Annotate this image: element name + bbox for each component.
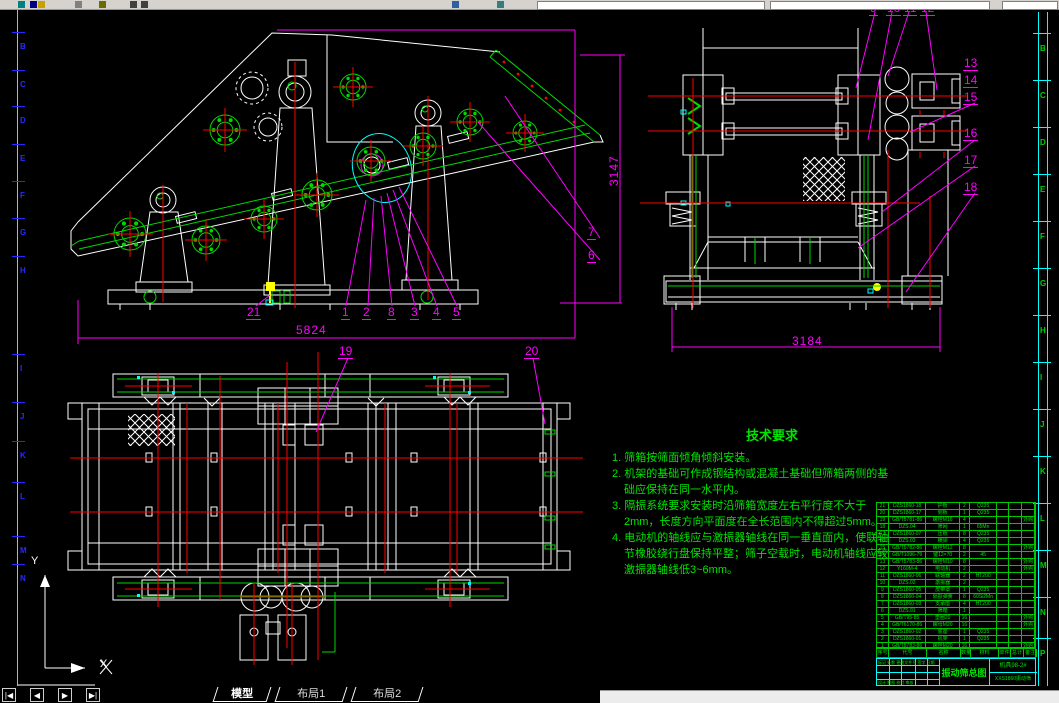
zone-tick — [1033, 456, 1051, 457]
table-row: 11DZS1860-06联轴器2HT200 — [877, 572, 1035, 579]
tab-布局1[interactable]: 布局1 — [275, 687, 348, 702]
zone-letter-left-F: F — [20, 192, 25, 200]
zone-letter-right-D: D — [1040, 139, 1046, 147]
callout-20: 20 — [524, 345, 539, 359]
table-row: 20DZS1860-17侧板1Q235 — [877, 509, 1035, 516]
zone-tick — [1033, 268, 1051, 269]
zone-letter-left-L: L — [20, 493, 25, 501]
tech-requirement-item-2: 2. 机架的基础可作成钢结构或混凝土基础但筛箱两侧的基础应保持在同一水平内。 — [612, 466, 894, 498]
callout-17: 17 — [963, 154, 978, 168]
color-combo[interactable] — [770, 1, 990, 10]
toolbar-icon[interactable] — [497, 1, 504, 8]
title-block-code: 机具98-2# — [990, 660, 1036, 672]
tech-requirement-item-3: 3. 隔振系统要求安装时沿筛箱宽度左右平行度不大于2mm，长度方向平面度在全长范… — [612, 498, 894, 530]
zone-tick — [12, 354, 25, 355]
tab-label: 布局2 — [354, 687, 420, 701]
zone-letter-left-I: I — [20, 365, 22, 373]
toolbar-icon[interactable] — [38, 1, 45, 8]
zone-letter-left-H: H — [20, 267, 26, 275]
bearing-highlight — [344, 126, 421, 210]
callout-2: 2 — [362, 306, 371, 320]
toolbar-icon[interactable] — [452, 1, 459, 8]
table-row: 17DZS1860-07压板8Q235 — [877, 530, 1035, 537]
plan-view-green — [117, 379, 555, 652]
zone-letter-left-N: N — [20, 575, 26, 583]
table-cell: 名称 — [927, 649, 961, 657]
zone-tick — [12, 482, 25, 483]
callout-5: 5 — [452, 306, 461, 320]
zone-letter-left-M: M — [20, 547, 27, 555]
table-cell: 备注 — [1024, 649, 1037, 657]
linetype-combo[interactable] — [1002, 1, 1058, 10]
table-row: 13GB/T5783-86螺栓M108外购 — [877, 558, 1035, 565]
zone-letter-left-G: G — [20, 229, 26, 237]
zone-letter-left-K: K — [20, 452, 26, 460]
zone-tick — [1033, 33, 1051, 34]
callout-8: 8 — [387, 306, 396, 320]
zone-letter-right-N: N — [1040, 609, 1046, 617]
callout-6: 6 — [587, 249, 596, 263]
table-header-row: 序号代号名称数量材料单件总计备注 — [877, 649, 1037, 657]
parts-table-header: 序号代号名称数量材料单件总计备注 — [876, 648, 1036, 658]
tech-requirement-item-4: 4. 电动机的轴线应与激振器轴线在同一垂直面内，使联轴节橡胶绕行盘保持平整；筛子… — [612, 530, 894, 578]
callout-13: 13 — [963, 57, 978, 71]
zone-tick — [12, 70, 25, 71]
callout-3: 3 — [410, 306, 419, 320]
table-cell: 总计 — [1011, 649, 1024, 657]
zone-letter-right-M: M — [1040, 562, 1047, 570]
toolbar-icon[interactable] — [18, 1, 25, 8]
zone-letter-left-D: D — [20, 117, 26, 125]
bottom-bar: |◀◀▶▶| 模型布局1布局2 — [0, 687, 1059, 703]
sheet-border-left — [17, 10, 18, 686]
toolbar-icon[interactable] — [99, 1, 106, 8]
table-row: 19GB/T5781-86螺栓M164外购 — [877, 516, 1035, 523]
toolbar-icon[interactable] — [141, 1, 148, 8]
table-cell: 序号 — [877, 649, 889, 657]
tab-label: 模型 — [216, 687, 268, 701]
sheet-border-right-inner — [1047, 12, 1048, 686]
zone-tick — [12, 402, 25, 403]
callout-21: 21 — [246, 306, 261, 320]
layer-combo[interactable] — [537, 1, 765, 10]
table-row: 18DZS.04筛网165Mn — [877, 523, 1035, 530]
tab-nav-button-3[interactable]: ▶| — [86, 688, 100, 702]
zone-letter-right-F: F — [1040, 233, 1045, 241]
zone-tick — [1033, 127, 1051, 128]
top-toolbar — [0, 0, 1059, 10]
callout-14: 14 — [963, 74, 978, 88]
zone-tick — [1033, 362, 1051, 363]
table-cell: 代号 — [889, 649, 927, 657]
zone-letter-right-E: E — [1040, 186, 1045, 194]
callout-4: 4 — [432, 306, 441, 320]
front-view — [71, 33, 603, 310]
table-row: 4GB/T6170-86螺母M2016外购 — [877, 621, 1035, 628]
zone-tick — [12, 256, 25, 257]
zone-tick — [1033, 409, 1051, 410]
callout-16: 16 — [963, 127, 978, 141]
zone-letter-right-L: L — [1040, 515, 1045, 523]
sheet-border-right-outer — [1038, 12, 1039, 686]
end-view — [664, 28, 960, 310]
table-row: 2DZS1860-01机架1Q235 — [877, 635, 1035, 642]
zone-tick — [12, 564, 25, 565]
front-view-green — [71, 50, 600, 303]
zone-tick — [12, 144, 25, 145]
zone-letter-right-I: I — [1040, 374, 1042, 382]
table-row: 9DZS1860-05皮带罩1Q235 — [877, 586, 1035, 593]
table-row: 6DZS.01筛箱1 — [877, 607, 1035, 614]
title-block-model: XXS1860振动筛 — [990, 673, 1036, 685]
zone-letter-right-B: B — [1040, 45, 1046, 53]
toolbar-icon[interactable] — [75, 1, 82, 8]
table-row: 7DZS1860-03支承座4HT200 — [877, 600, 1035, 607]
front-view-plate-bolts — [503, 61, 576, 124]
tab-nav-button-1[interactable]: ◀ — [30, 688, 44, 702]
zone-letter-right-C: C — [1040, 92, 1046, 100]
tab-label: 布局1 — [278, 687, 344, 701]
title-block-drawing-title: 振动筛总图 — [940, 661, 988, 685]
zone-tick — [12, 106, 25, 107]
zone-letter-right-J: J — [1040, 421, 1044, 429]
zone-letter-left-J: J — [20, 413, 24, 421]
table-row: 12Y160M-4电动机2外购 — [877, 565, 1035, 572]
zone-tick — [1033, 221, 1051, 222]
dim-front-width: 5824 — [296, 324, 327, 336]
table-cell: 单件 — [999, 649, 1011, 657]
dim-front-height: 3147 — [608, 155, 620, 186]
zone-tick — [12, 218, 25, 219]
toolbar-icon[interactable] — [130, 1, 137, 8]
table-cell: 数量 — [961, 649, 971, 657]
horizontal-scrollbar[interactable] — [600, 690, 1059, 703]
callout-15: 15 — [963, 91, 978, 105]
callout-7: 7 — [587, 226, 596, 240]
table-row: 3DZS1860-02底座1Q235 — [877, 628, 1035, 635]
zone-tick — [1033, 174, 1051, 175]
title-block-rev-labels: 标记 处数 更改文件号 签字 日期 — [878, 660, 938, 665]
zone-letter-left-E: E — [20, 155, 25, 163]
tech-requirements: 技术要求 1. 筛箱按筛面倾角倾斜安装。2. 机架的基础可作成钢结构或混凝土基础… — [612, 425, 894, 578]
tab-nav-button-0[interactable]: |◀ — [2, 688, 16, 702]
zone-letter-right-G: G — [1040, 280, 1046, 288]
tab-布局2[interactable]: 布局2 — [351, 687, 424, 702]
table-cell: 材料 — [971, 649, 999, 657]
table-row: 10DZS.02激振器2 — [877, 579, 1035, 586]
drawing-canvas[interactable]: BCDEFGHIJKLMNBCDEFGHIJKLMNP 5824 3147 31… — [0, 0, 1059, 687]
autocad-window: { "colors":{"bg":"#000000","line":"#ffff… — [0, 0, 1059, 703]
callout-19: 19 — [338, 345, 353, 359]
ucs-x-label: X — [100, 659, 107, 670]
zone-letter-left-B: B — [20, 43, 26, 51]
zone-letter-right-K: K — [1040, 468, 1046, 476]
callout-18: 18 — [963, 181, 978, 195]
toolbar-icon[interactable] — [30, 1, 37, 8]
table-row: 5GB/T95-85垫圈2016外购 — [877, 614, 1035, 621]
zone-letter-right-H: H — [1040, 327, 1046, 335]
zone-letter-right-P: P — [1040, 650, 1045, 658]
zone-tick — [1033, 80, 1051, 81]
tab-模型[interactable]: 模型 — [213, 687, 272, 702]
title-block: 标记 处数 更改文件号 签字 日期 设计 制图 校对 审核 振动筛总图 机具98… — [876, 658, 1036, 686]
ucs-icon — [17, 575, 112, 685]
table-row: 16DZS.03横梁4Q235 — [877, 537, 1035, 544]
title-block-sign-labels: 设计 制图 校对 审核 — [878, 680, 938, 685]
plan-view — [68, 374, 570, 660]
flange-circles — [107, 67, 544, 261]
callout-1: 1 — [341, 306, 350, 320]
table-row: 15GB/T5782-86螺栓M128外购 — [877, 544, 1035, 551]
parts-table: 21DZS1860-18护板2Q23520DZS1860-17侧板1Q23519… — [876, 502, 1036, 648]
zone-letter-left-C: C — [20, 81, 26, 89]
table-row: 8DZS1860-04隔振弹簧860Si2Mn — [877, 593, 1035, 600]
zone-tick — [1033, 315, 1051, 316]
tech-requirements-title: 技术要求 — [682, 425, 862, 444]
tech-requirement-item-1: 1. 筛箱按筛面倾角倾斜安装。 — [612, 450, 894, 466]
zone-tick — [12, 181, 25, 182]
zone-tick — [12, 32, 25, 33]
ucs-y-label: Y — [31, 556, 38, 567]
dim-end-width: 3184 — [792, 335, 823, 347]
tab-nav-button-2[interactable]: ▶ — [58, 688, 72, 702]
zone-tick — [12, 441, 25, 442]
zone-tick — [12, 536, 25, 537]
table-row: 14GB/T1096-79键12×70245 — [877, 551, 1035, 558]
